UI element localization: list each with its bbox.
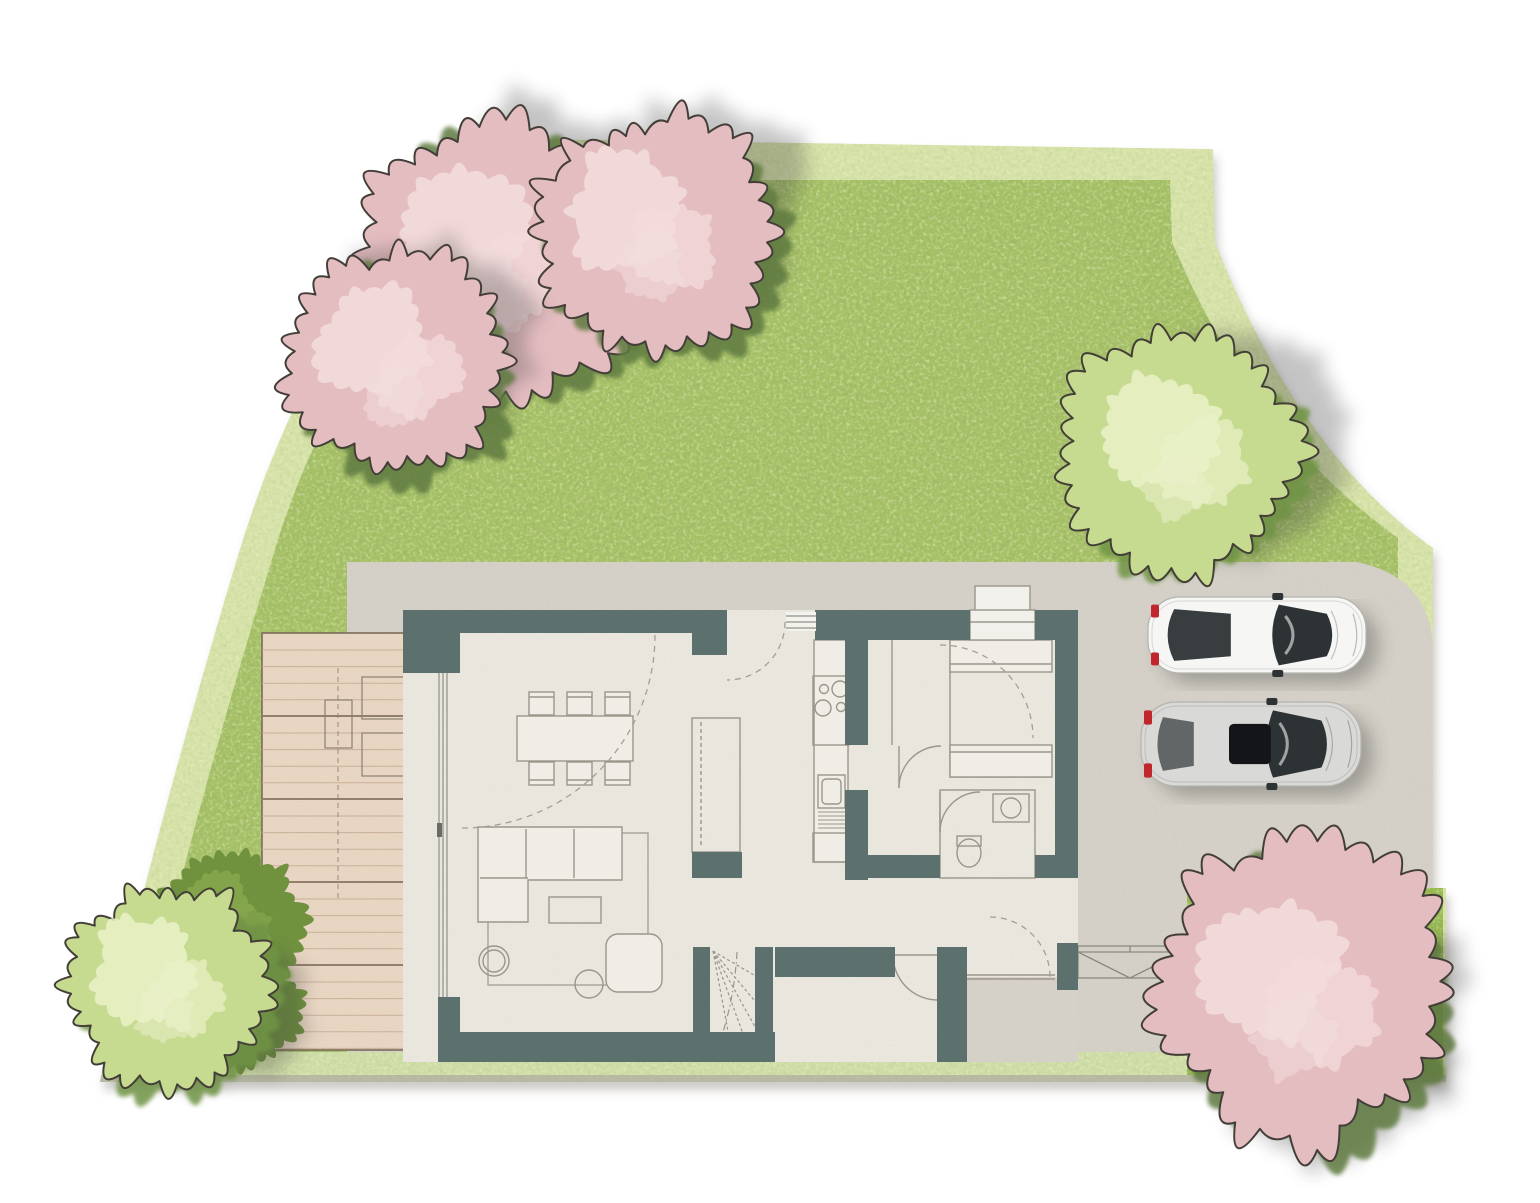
car-white-mirror (1272, 670, 1283, 677)
car-silver-taillight (1144, 710, 1152, 724)
kitchen (813, 640, 849, 862)
car-silver-mirror (1266, 698, 1277, 705)
house (403, 586, 1078, 1062)
dining-set (517, 692, 633, 785)
armchair (606, 934, 662, 992)
car-white-rear-window (1168, 609, 1231, 661)
top-window (786, 612, 816, 631)
site-plan (0, 0, 1540, 1203)
blossom-bottom-right (1142, 825, 1472, 1175)
car-silver (1141, 698, 1373, 796)
car-white-taillight (1151, 605, 1159, 618)
car-silver-sunroof (1229, 724, 1271, 764)
car-silver-mirror (1266, 783, 1277, 790)
entrance-mat (970, 586, 1035, 640)
car-silver-taillight (1144, 763, 1152, 777)
car-silver-windshield (1266, 710, 1327, 777)
site-plan-stage (0, 0, 1540, 1203)
car-white-taillight (1151, 652, 1159, 665)
car-white (1148, 593, 1378, 683)
car-white-windshield (1272, 605, 1332, 666)
car-white-mirror (1272, 593, 1283, 600)
